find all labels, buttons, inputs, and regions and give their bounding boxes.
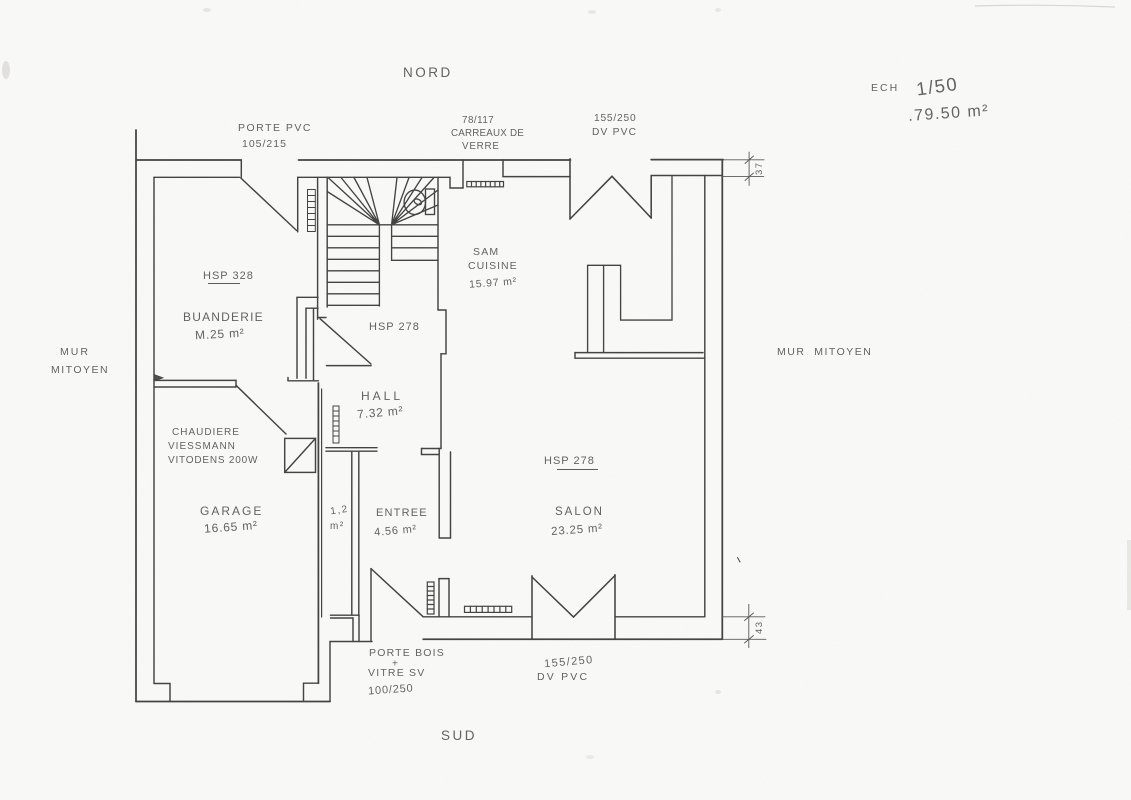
svg-text:78/117: 78/117 [462, 115, 494, 126]
svg-text:m²: m² [330, 521, 345, 532]
svg-text:VIESSMANN: VIESSMANN [168, 441, 236, 452]
svg-text:VITODENS 200W: VITODENS 200W [168, 455, 258, 466]
svg-text:SALON: SALON [555, 506, 604, 518]
svg-text:CUISINE: CUISINE [468, 260, 518, 272]
svg-text:HALL: HALL [361, 389, 403, 403]
svg-text:PORTE BOIS: PORTE BOIS [369, 647, 445, 659]
svg-text:VITRE SV: VITRE SV [368, 667, 425, 679]
svg-text:37: 37 [754, 161, 765, 175]
svg-text:VERRE: VERRE [462, 141, 500, 152]
svg-text:HSP 278: HSP 278 [369, 321, 420, 333]
svg-text:DV PVC: DV PVC [537, 671, 589, 683]
svg-text:SAM: SAM [473, 246, 499, 258]
svg-text:HSP 278: HSP 278 [544, 455, 595, 467]
svg-text:CHAUDIERE: CHAUDIERE [172, 427, 240, 438]
svg-text:CARREAUX DE: CARREAUX DE [451, 128, 524, 139]
svg-text:105/215: 105/215 [242, 138, 287, 150]
svg-text:ECH: ECH [871, 82, 899, 94]
svg-text:43: 43 [754, 620, 765, 634]
svg-text:GARAGE: GARAGE [200, 504, 263, 518]
svg-text:MITOYEN: MITOYEN [51, 364, 109, 376]
svg-text:PORTE PVC: PORTE PVC [238, 122, 312, 134]
svg-text:HSP 328: HSP 328 [203, 270, 254, 282]
svg-text:155/250: 155/250 [594, 113, 636, 124]
svg-text:MUR: MUR [60, 346, 90, 358]
svg-text:SUD: SUD [441, 728, 477, 743]
svg-text:ENTREE: ENTREE [376, 507, 428, 519]
svg-text:MUR MITOYEN: MUR MITOYEN [777, 346, 872, 358]
svg-text:M.25 m²: M.25 m² [195, 326, 245, 343]
svg-text:BUANDERIE: BUANDERIE [183, 310, 264, 324]
svg-text:DV PVC: DV PVC [592, 127, 637, 138]
svg-text:NORD: NORD [403, 65, 453, 80]
